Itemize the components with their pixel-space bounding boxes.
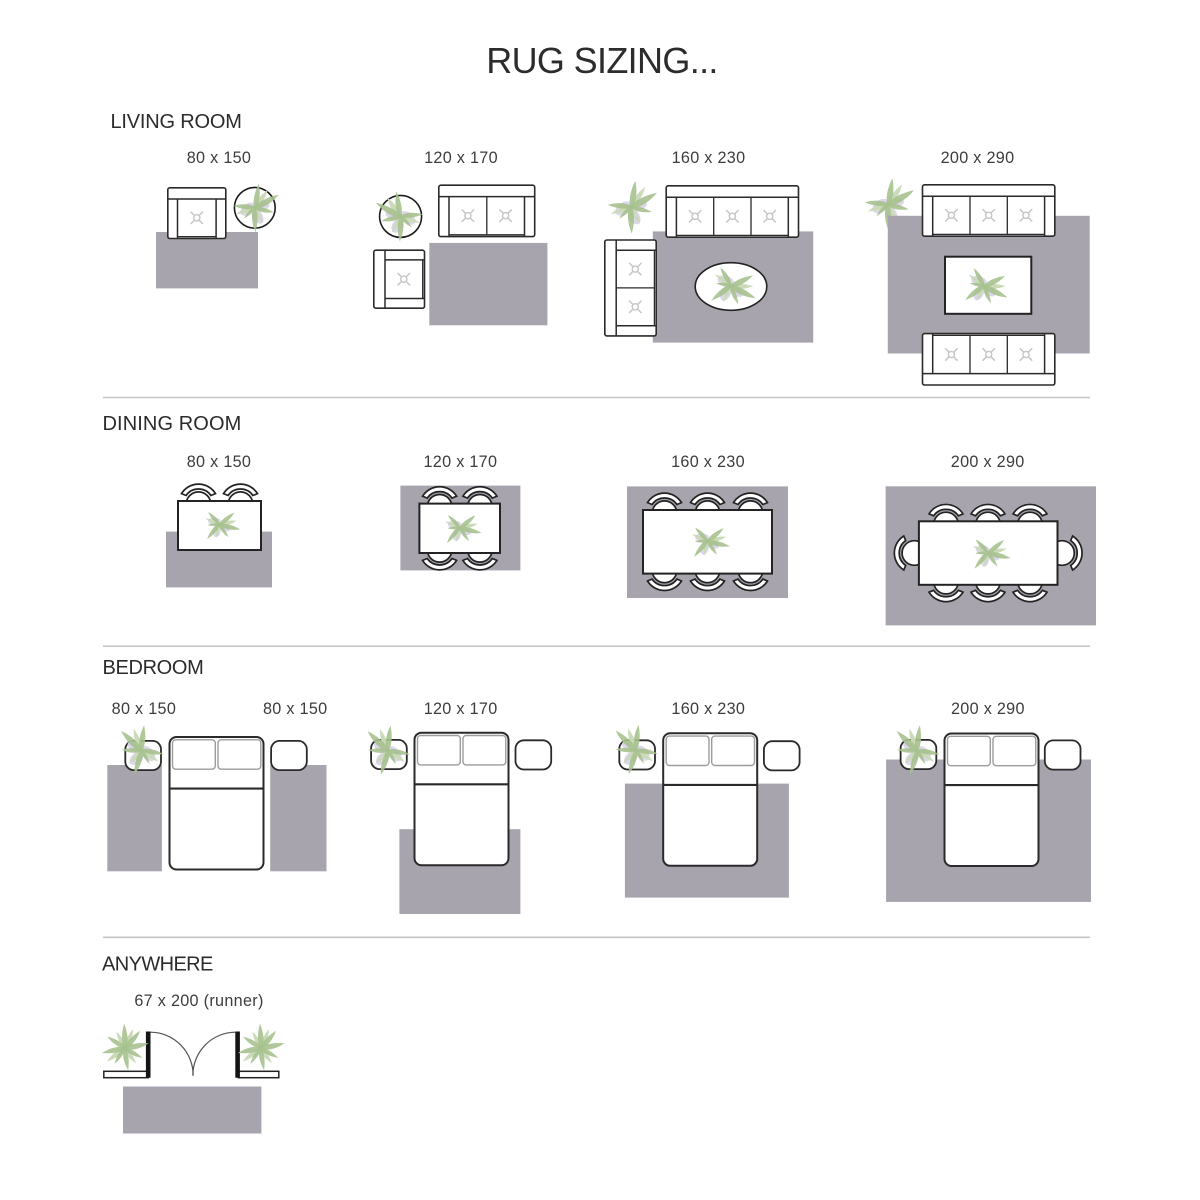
svg-text:120 x 170: 120 x 170 (424, 149, 498, 167)
svg-text:LIVING ROOM: LIVING ROOM (111, 111, 242, 133)
svg-text:DINING ROOM: DINING ROOM (103, 413, 242, 435)
svg-text:200 x 290: 200 x 290 (951, 700, 1025, 718)
svg-text:200 x 290: 200 x 290 (951, 453, 1025, 471)
svg-text:ANYWHERE: ANYWHERE (102, 954, 213, 976)
svg-text:120 x 170: 120 x 170 (424, 700, 498, 718)
svg-text:RUG SIZING...: RUG SIZING... (486, 40, 718, 81)
svg-text:200 x 290: 200 x 290 (941, 149, 1015, 167)
svg-text:160 x 230: 160 x 230 (671, 453, 745, 471)
svg-text:160 x 230: 160 x 230 (672, 149, 746, 167)
svg-text:BEDROOM: BEDROOM (103, 657, 204, 679)
svg-text:80 x 150: 80 x 150 (187, 453, 252, 471)
svg-text:80 x 150: 80 x 150 (187, 149, 252, 167)
svg-text:80 x 150: 80 x 150 (263, 700, 328, 718)
svg-text:120 x 170: 120 x 170 (423, 453, 497, 471)
svg-text:80 x 150: 80 x 150 (112, 700, 177, 718)
svg-text:160 x 230: 160 x 230 (671, 700, 745, 718)
svg-text:67 x 200 (runner): 67 x 200 (runner) (134, 992, 263, 1010)
